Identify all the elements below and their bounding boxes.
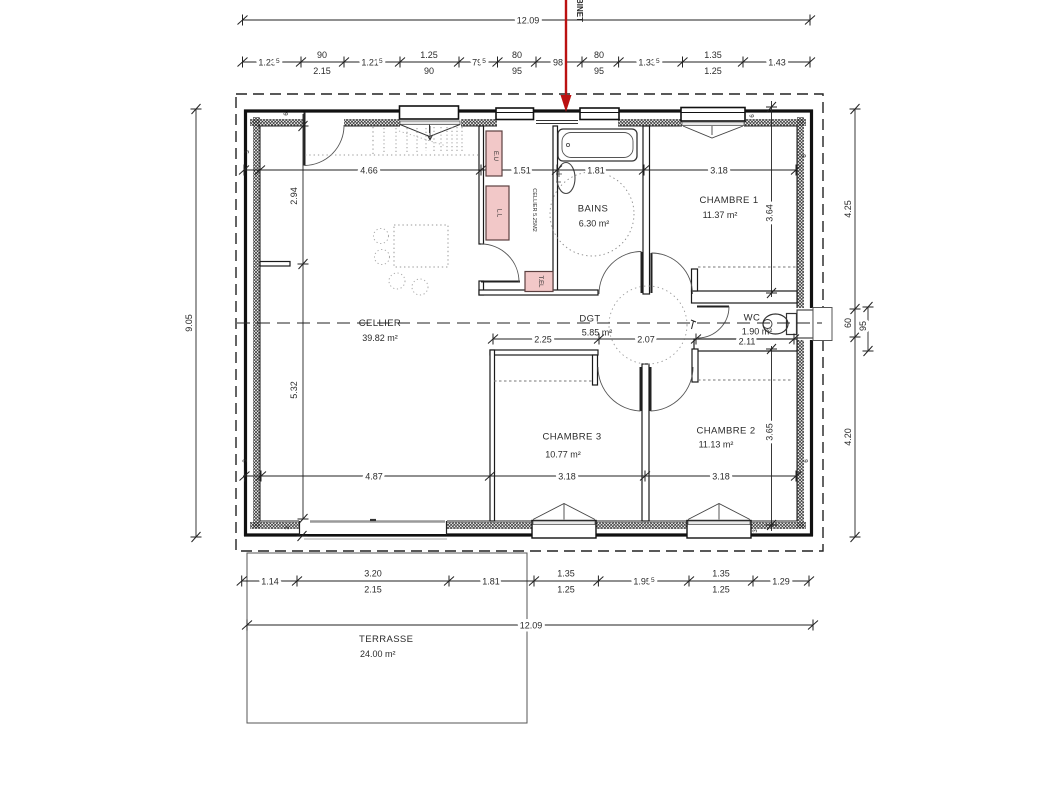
svg-text:2.07: 2.07	[637, 335, 655, 345]
svg-text:98: 98	[553, 58, 563, 68]
svg-text:5.32: 5.32	[289, 381, 299, 399]
svg-text:80: 80	[512, 50, 522, 60]
svg-text:1.81: 1.81	[482, 577, 500, 587]
svg-text:3.18: 3.18	[558, 472, 576, 482]
svg-text:90: 90	[317, 50, 327, 60]
svg-text:DGT: DGT	[579, 314, 600, 325]
svg-text:4.87: 4.87	[365, 472, 383, 482]
svg-text:1.955: 1.955	[633, 577, 655, 587]
svg-text:4.20: 4.20	[843, 428, 853, 446]
svg-text:1.81: 1.81	[587, 166, 605, 176]
svg-text:1.25: 1.25	[420, 50, 438, 60]
svg-text:1.14: 1.14	[261, 577, 279, 587]
svg-text:3.64: 3.64	[765, 204, 775, 222]
svg-text:11.13 m²: 11.13 m²	[699, 440, 734, 450]
svg-text:24.00 m²: 24.00 m²	[360, 649, 396, 659]
svg-text:4.66: 4.66	[360, 166, 378, 176]
svg-text:3.18: 3.18	[712, 472, 730, 482]
svg-text:WC: WC	[744, 313, 761, 324]
svg-text:L.L: L.L	[496, 209, 502, 218]
svg-text:CELLIER: CELLIER	[359, 318, 401, 329]
svg-text:1.43: 1.43	[768, 58, 786, 68]
svg-text:39.82 m²: 39.82 m²	[362, 333, 398, 343]
svg-text:1.35: 1.35	[704, 50, 722, 60]
svg-text:6: 6	[804, 459, 810, 463]
svg-text:3.20: 3.20	[364, 569, 382, 579]
svg-text:95: 95	[594, 66, 604, 76]
svg-text:ROBINET: ROBINET	[575, 0, 584, 22]
svg-text:CHAMBRE 1: CHAMBRE 1	[699, 195, 758, 206]
svg-text:95: 95	[858, 321, 868, 331]
svg-text:1.235: 1.235	[258, 58, 280, 68]
svg-text:1.25: 1.25	[704, 66, 722, 76]
svg-text:95: 95	[512, 66, 522, 76]
svg-text:3: 3	[753, 529, 759, 533]
svg-text:3.18: 3.18	[710, 166, 728, 176]
svg-text:1.90 m²: 1.90 m²	[742, 327, 773, 337]
svg-text:1.25: 1.25	[557, 585, 575, 595]
svg-text:80: 80	[594, 50, 604, 60]
svg-text:1.215: 1.215	[361, 58, 383, 68]
svg-text:9.05: 9.05	[184, 314, 194, 332]
svg-text:795: 795	[472, 58, 486, 68]
svg-text:6.30 m²: 6.30 m²	[579, 219, 610, 229]
svg-text:12.09: 12.09	[517, 16, 540, 26]
svg-text:2.11: 2.11	[739, 337, 756, 347]
svg-text:2.15: 2.15	[364, 585, 382, 595]
svg-text:BAINS: BAINS	[578, 204, 609, 215]
svg-text:1.35: 1.35	[557, 569, 575, 579]
svg-text:1.51: 1.51	[513, 166, 531, 176]
svg-text:TERRASSE: TERRASSE	[359, 634, 413, 645]
svg-text:1.25: 1.25	[712, 585, 730, 595]
svg-text:E.U: E.U	[492, 151, 498, 161]
svg-text:1.335: 1.335	[638, 58, 660, 68]
svg-text:T.EL: T.EL	[537, 275, 543, 288]
svg-text:6: 6	[750, 114, 756, 118]
svg-text:60: 60	[843, 318, 853, 328]
svg-text:2.94: 2.94	[289, 187, 299, 205]
svg-text:11.37 m²: 11.37 m²	[703, 210, 738, 220]
svg-text:1.29: 1.29	[772, 577, 790, 587]
svg-text:CELLIER 5.25M2: CELLIER 5.25M2	[531, 188, 537, 232]
svg-text:90: 90	[424, 66, 434, 76]
svg-text:2.15: 2.15	[313, 66, 331, 76]
svg-text:5.85 m²: 5.85 m²	[582, 328, 613, 338]
svg-text:2.25: 2.25	[534, 335, 552, 345]
svg-text:4.25: 4.25	[843, 200, 853, 218]
svg-text:10.77 m²: 10.77 m²	[545, 450, 581, 460]
svg-text:12.09: 12.09	[520, 621, 543, 631]
svg-text:CHAMBRE 2: CHAMBRE 2	[696, 426, 755, 437]
svg-text:CHAMBRE 3: CHAMBRE 3	[542, 432, 601, 443]
svg-text:3.65: 3.65	[765, 423, 775, 441]
svg-text:1.35: 1.35	[712, 569, 730, 579]
